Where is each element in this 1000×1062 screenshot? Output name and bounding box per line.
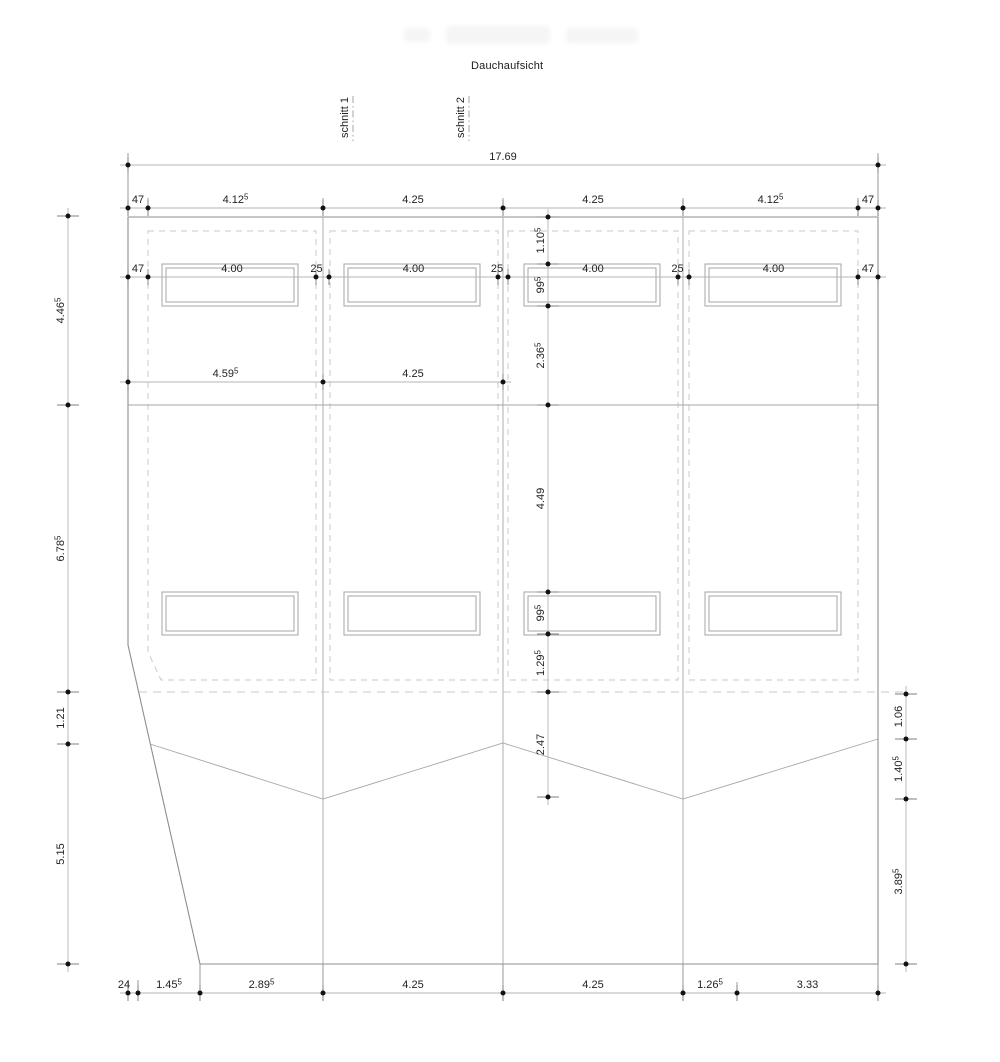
dim-dot (321, 380, 326, 385)
dim-label: 3.895 (892, 868, 906, 894)
dim-label: 1.06 (893, 706, 905, 727)
dim-dot (546, 795, 551, 800)
dim-dot (856, 275, 861, 280)
dim-dot (146, 206, 151, 211)
dim-dot (126, 163, 131, 168)
dim-label: 4.00 (582, 263, 603, 275)
dim-dot (506, 275, 511, 280)
skylight-outer (705, 592, 841, 635)
dim-label: 4.25 (402, 368, 423, 380)
dim-label: 47 (132, 194, 144, 206)
dim-dot (501, 380, 506, 385)
dim-chain-bay-widths: 474.1254.254.254.12547 (120, 193, 886, 217)
dim-label: 3.33 (797, 979, 818, 991)
dim-dot (546, 304, 551, 309)
dim-label: 47 (862, 263, 874, 275)
dim-chain-overall-width: 17.69 (120, 151, 886, 173)
dim-label: 4.25 (582, 979, 603, 991)
dim-dot (546, 403, 551, 408)
dim-label: 24 (118, 979, 130, 991)
dim-label: 4.25 (582, 194, 603, 206)
dim-label: 1.21 (55, 707, 67, 728)
dim-dot (876, 163, 881, 168)
section-label: schnitt 1 (339, 97, 351, 138)
dim-dot (126, 206, 131, 211)
dim-dot (856, 206, 861, 211)
dim-chain-right-heights: 1.061.4053.895 (892, 686, 918, 972)
roof-plan-drawing: 17.69474.1254.254.254.12547474.00254.002… (0, 0, 1000, 1062)
dim-label: 4.125 (223, 193, 249, 207)
dim-dot (546, 262, 551, 267)
dim-dot (676, 275, 681, 280)
dim-chain-left-heights: 4.4656.7851.215.15 (54, 208, 80, 972)
dim-label: 4.595 (213, 367, 239, 381)
drawing-canvas: Dauchaufsicht 17.69474.1254.254.254.1254… (0, 0, 1000, 1062)
dim-dot (496, 275, 501, 280)
dim-dot (126, 380, 131, 385)
dim-label: 47 (132, 263, 144, 275)
dim-dot (321, 206, 326, 211)
dim-dot (66, 214, 71, 219)
dim-label: 2.895 (249, 978, 275, 992)
dim-dot (66, 690, 71, 695)
skylight-outer (162, 592, 298, 635)
dim-label: 1.295 (534, 650, 548, 676)
dim-dot (126, 991, 131, 996)
dim-label: 1.265 (697, 978, 723, 992)
dim-dot (904, 797, 909, 802)
dim-label: 25 (491, 263, 503, 275)
roof-valley-line (150, 739, 878, 799)
dim-dot (501, 206, 506, 211)
dim-dot (876, 206, 881, 211)
dim-dot (126, 275, 131, 280)
dim-label: 4.00 (763, 263, 784, 275)
dim-label: 4.125 (758, 193, 784, 207)
dim-dot (904, 692, 909, 697)
dim-label: 6.785 (54, 535, 68, 561)
dim-label: 4.25 (402, 194, 423, 206)
dim-label: 2.365 (534, 342, 548, 368)
dim-dot (546, 215, 551, 220)
dim-chain-bottom-widths: 241.4552.8954.254.251.2653.33 (118, 978, 886, 1002)
dim-label: 4.00 (221, 263, 242, 275)
dim-dot (546, 632, 551, 637)
dim-label: 4.465 (54, 297, 68, 323)
dim-dot (314, 275, 319, 280)
dim-dot (876, 991, 881, 996)
dim-dot (876, 275, 881, 280)
dim-dot (198, 991, 203, 996)
dim-label: 4.49 (535, 488, 547, 509)
dim-label: 5.15 (55, 843, 67, 864)
dim-dot (501, 991, 506, 996)
dim-dot (546, 690, 551, 695)
dim-dot (327, 275, 332, 280)
dim-dot (681, 206, 686, 211)
dim-dot (66, 962, 71, 967)
dim-label: 1.405 (892, 756, 906, 782)
dim-dot (735, 991, 740, 996)
section-marker: schnitt 1 (339, 96, 353, 141)
dim-dot (681, 991, 686, 996)
dim-label: 4.25 (402, 979, 423, 991)
dim-dot (904, 962, 909, 967)
dim-dot (136, 991, 141, 996)
dim-label: 47 (862, 194, 874, 206)
dim-label: 4.00 (403, 263, 424, 275)
dim-label: 25 (310, 263, 322, 275)
dim-label: 2.47 (535, 734, 547, 755)
dim-dot (687, 275, 692, 280)
dim-label: 1.455 (156, 978, 182, 992)
skylight-outer (344, 592, 480, 635)
dim-dot (66, 403, 71, 408)
section-label: schnitt 2 (455, 97, 467, 138)
section-marker: schnitt 2 (455, 96, 469, 141)
dim-dot (321, 991, 326, 996)
dim-dot (904, 737, 909, 742)
dim-dot (146, 275, 151, 280)
dim-dot (66, 742, 71, 747)
dim-label: 17.69 (489, 151, 517, 163)
dim-dot (546, 590, 551, 595)
dim-label: 25 (671, 263, 683, 275)
